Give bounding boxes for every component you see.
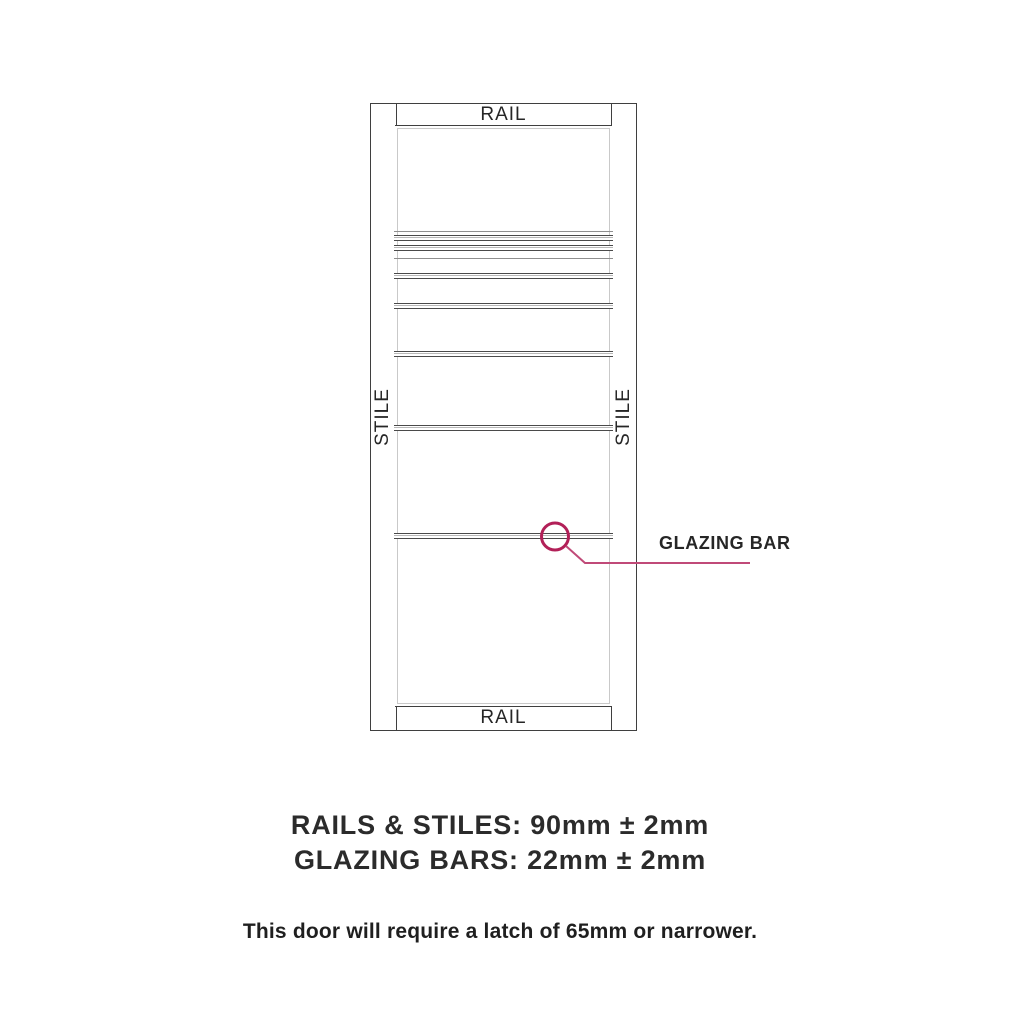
glazing-bar (394, 235, 613, 241)
glazing-bar (394, 245, 613, 251)
door-rail-bottom: RAIL (395, 706, 612, 730)
door-diagram: STILE STILE RAIL RAIL (370, 103, 637, 731)
stile-right-label: STILE (613, 388, 635, 446)
bead-line (394, 231, 613, 232)
stile-left-label: STILE (372, 388, 394, 446)
rail-bottom-label: RAIL (480, 708, 526, 727)
glazing-bar (394, 303, 613, 309)
door-stile-left: STILE (371, 104, 397, 730)
rails-stiles-spec: RAILS & STILES: 90mm ± 2mm (0, 808, 1000, 843)
glazing-bar (394, 273, 613, 279)
glazing-bar (394, 533, 613, 539)
glazing-bar (394, 351, 613, 357)
latch-note: This door will require a latch of 65mm o… (0, 920, 1000, 944)
door-rail-top: RAIL (395, 104, 612, 126)
bead-line (394, 258, 613, 259)
spec-text-block: RAILS & STILES: 90mm ± 2mm GLAZING BARS:… (0, 808, 1000, 944)
glazing-bar (394, 425, 613, 431)
door-glass-area (395, 126, 612, 707)
door-stile-right: STILE (611, 104, 637, 730)
glazing-bar-label: GLAZING BAR (659, 533, 791, 554)
rail-top-label: RAIL (480, 105, 526, 124)
diagram-canvas: STILE STILE RAIL RAIL GLAZING BAR RAILS … (0, 0, 1025, 1025)
glazing-bars-spec: GLAZING BARS: 22mm ± 2mm (0, 843, 1000, 878)
